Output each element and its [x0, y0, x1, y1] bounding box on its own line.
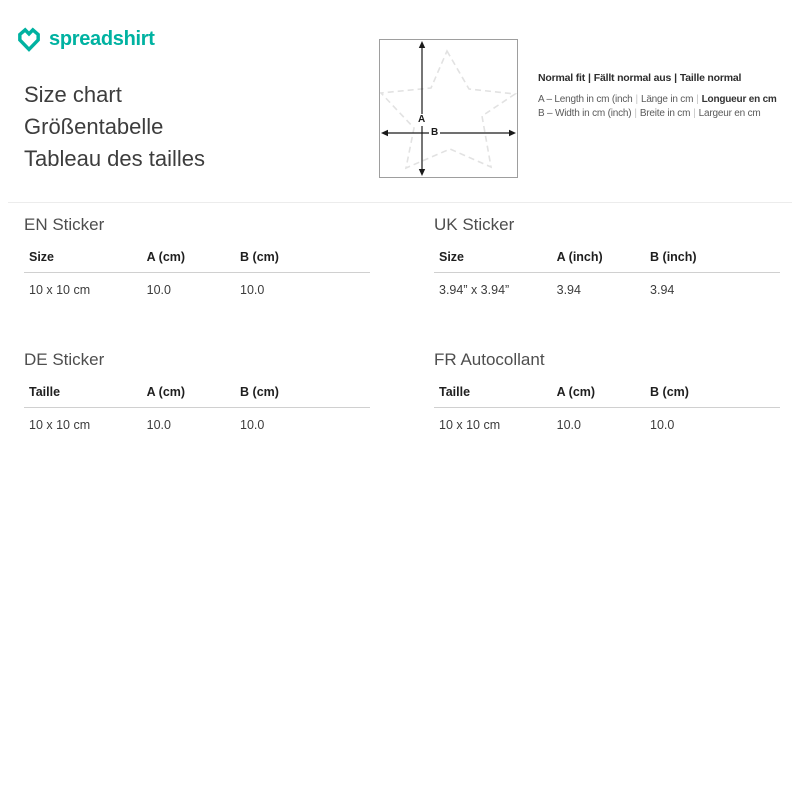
measurement-diagram: A B: [379, 39, 518, 178]
size-table-en: EN Sticker Size A (cm) B (cm) 10 x 10 cm…: [24, 215, 370, 297]
cell-b: 10.0: [235, 273, 370, 298]
cell-size: 10 x 10 cm: [24, 408, 142, 433]
cell-b: 3.94: [645, 273, 780, 298]
fit-legend: Normal fit|Fällt normal aus|Taille norma…: [538, 72, 800, 120]
width-b-label: B: [429, 127, 440, 139]
table-header-row: Taille A (cm) B (cm): [24, 383, 370, 408]
separator: |: [631, 108, 639, 119]
size-table-de: DE Sticker Taille A (cm) B (cm) 10 x 10 …: [24, 350, 370, 432]
col-header-size: Size: [24, 248, 142, 273]
section-divider: [8, 202, 792, 203]
col-header-b: B (cm): [235, 248, 370, 273]
table-header-row: Size A (cm) B (cm): [24, 248, 370, 273]
col-header-b: B (cm): [235, 383, 370, 408]
legend-a-de: Länge in cm: [641, 94, 693, 105]
cell-a: 10.0: [142, 408, 235, 433]
legend-line-b: B – Width in cm (inch)|Breite in cm|Larg…: [538, 107, 800, 121]
legend-b-en: B – Width in cm (inch): [538, 108, 631, 119]
heart-icon: [16, 27, 42, 52]
legend-b-fr: Largeur en cm: [699, 108, 761, 119]
page-title-fr: Tableau des tailles: [24, 143, 205, 175]
table-row: 10 x 10 cm 10.0 10.0: [434, 408, 780, 433]
size-table-uk: UK Sticker Size A (inch) B (inch) 3.94” …: [434, 215, 780, 297]
table-title-en: EN Sticker: [24, 215, 370, 235]
table-row: 3.94” x 3.94” 3.94 3.94: [434, 273, 780, 298]
separator: |: [690, 108, 698, 119]
cell-b: 10.0: [235, 408, 370, 433]
col-header-size: Taille: [434, 383, 552, 408]
cell-size: 10 x 10 cm: [24, 273, 142, 298]
col-header-b: B (cm): [645, 383, 780, 408]
legend-line-a: A – Length in cm (inch|Länge in cm|Longu…: [538, 93, 800, 107]
separator: |: [671, 72, 680, 84]
separator: |: [585, 72, 594, 84]
table-row: 10 x 10 cm 10.0 10.0: [24, 408, 370, 433]
col-header-size: Taille: [24, 383, 142, 408]
table-header-row: Taille A (cm) B (cm): [434, 383, 780, 408]
spreadshirt-logo[interactable]: spreadshirt: [16, 27, 155, 52]
col-header-a: A (cm): [552, 383, 645, 408]
brand-wordmark: spreadshirt: [49, 28, 155, 51]
page-title-block: Size chart Größentabelle Tableau des tai…: [24, 79, 205, 175]
table-title-de: DE Sticker: [24, 350, 370, 370]
fit-de: Fällt normal aus: [594, 72, 671, 84]
length-a-label: A: [416, 114, 427, 126]
table-row: 10 x 10 cm 10.0 10.0: [24, 273, 370, 298]
col-header-b: B (inch): [645, 248, 780, 273]
legend-a-fr: Longueur en cm: [702, 94, 777, 105]
col-header-a: A (inch): [552, 248, 645, 273]
cell-a: 10.0: [552, 408, 645, 433]
table-title-fr: FR Autocollant: [434, 350, 780, 370]
cell-a: 10.0: [142, 273, 235, 298]
fit-description-line: Normal fit|Fällt normal aus|Taille norma…: [538, 72, 800, 84]
col-header-a: A (cm): [142, 248, 235, 273]
cell-size: 10 x 10 cm: [434, 408, 552, 433]
table-header-row: Size A (inch) B (inch): [434, 248, 780, 273]
separator: |: [693, 94, 701, 105]
star-outline-drawing: [380, 40, 517, 177]
fit-en: Normal fit: [538, 72, 585, 84]
size-table-fr: FR Autocollant Taille A (cm) B (cm) 10 x…: [434, 350, 780, 432]
legend-a-en: A – Length in cm (inch: [538, 94, 633, 105]
cell-a: 3.94: [552, 273, 645, 298]
cell-size: 3.94” x 3.94”: [434, 273, 552, 298]
fit-fr: Taille normal: [680, 72, 741, 84]
col-header-a: A (cm): [142, 383, 235, 408]
legend-b-de: Breite in cm: [640, 108, 690, 119]
separator: |: [633, 94, 641, 105]
col-header-size: Size: [434, 248, 552, 273]
table-title-uk: UK Sticker: [434, 215, 780, 235]
page-title-de: Größentabelle: [24, 111, 205, 143]
cell-b: 10.0: [645, 408, 780, 433]
page-title-en: Size chart: [24, 79, 205, 111]
